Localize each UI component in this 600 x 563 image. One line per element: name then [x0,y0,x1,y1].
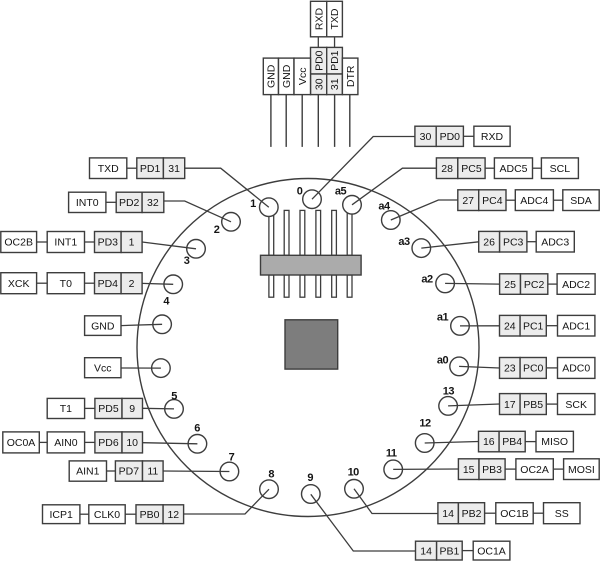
svg-text:6: 6 [194,423,200,435]
svg-text:8: 8 [268,469,274,481]
svg-text:25: 25 [504,279,516,291]
svg-text:a5: a5 [335,186,347,198]
svg-text:11: 11 [386,448,397,460]
svg-text:2: 2 [214,224,220,236]
svg-text:PD0: PD0 [313,50,325,71]
svg-text:XCK: XCK [8,278,30,290]
svg-text:PC5: PC5 [461,163,482,175]
svg-text:14: 14 [442,508,454,520]
svg-text:SS: SS [555,508,569,520]
svg-text:a3: a3 [398,236,410,248]
svg-text:a1: a1 [437,312,449,324]
svg-text:SCL: SCL [550,163,571,175]
svg-text:0: 0 [297,186,303,198]
svg-text:ADC3: ADC3 [541,236,569,248]
svg-text:28: 28 [441,163,453,175]
svg-text:PD4: PD4 [98,278,119,290]
svg-text:GND: GND [281,64,293,88]
svg-text:OC1A: OC1A [477,545,506,557]
svg-text:11: 11 [147,466,158,478]
svg-text:AIN1: AIN1 [76,466,100,478]
svg-text:a2: a2 [421,274,433,286]
svg-text:10: 10 [126,437,138,449]
svg-text:PD1: PD1 [329,50,341,71]
svg-text:DTR: DTR [345,65,357,87]
svg-text:PD1: PD1 [140,163,161,175]
svg-text:TXD: TXD [98,163,119,175]
svg-text:ADC1: ADC1 [562,320,590,332]
svg-text:PD3: PD3 [98,237,119,249]
svg-text:OC0A: OC0A [7,437,36,449]
svg-text:3: 3 [184,255,190,267]
svg-text:12: 12 [419,418,431,430]
svg-text:15: 15 [463,464,475,476]
svg-text:RXD: RXD [313,7,325,30]
svg-text:Vcc: Vcc [297,68,309,86]
svg-text:16: 16 [483,436,495,448]
svg-text:Vcc: Vcc [94,362,112,374]
svg-text:7: 7 [229,452,235,464]
svg-text:MOSI: MOSI [568,464,595,476]
svg-text:OC2A: OC2A [520,464,549,476]
svg-text:AIN0: AIN0 [54,437,78,449]
svg-text:23: 23 [504,363,516,375]
svg-text:PB3: PB3 [482,464,502,476]
svg-text:5: 5 [171,391,177,403]
svg-text:GND: GND [91,320,115,332]
svg-text:a0: a0 [437,355,449,367]
svg-text:ICP1: ICP1 [50,509,74,521]
svg-text:PB0: PB0 [140,509,160,521]
svg-text:PC1: PC1 [523,320,544,332]
svg-text:30: 30 [420,131,432,143]
svg-text:9: 9 [129,403,135,415]
svg-text:1: 1 [250,198,256,210]
svg-text:INT0: INT0 [76,197,99,209]
svg-text:14: 14 [420,545,432,557]
svg-text:TXD: TXD [329,8,341,29]
svg-text:PC4: PC4 [482,195,503,207]
svg-text:OC2B: OC2B [4,237,33,249]
svg-text:26: 26 [483,236,495,248]
svg-text:PC2: PC2 [524,279,545,291]
svg-text:SDA: SDA [570,195,592,207]
svg-text:10: 10 [348,467,360,479]
svg-text:PB5: PB5 [523,399,543,411]
svg-text:INT1: INT1 [54,237,77,249]
svg-text:PB2: PB2 [462,508,482,520]
svg-text:30: 30 [313,78,325,90]
svg-text:ADC5: ADC5 [499,163,527,175]
svg-text:a4: a4 [378,201,391,213]
svg-text:2: 2 [129,278,135,290]
svg-text:17: 17 [504,399,516,411]
svg-text:PB4: PB4 [502,436,522,448]
svg-text:MISO: MISO [541,436,568,448]
svg-text:32: 32 [147,197,159,209]
svg-text:27: 27 [462,195,474,207]
svg-text:1: 1 [129,237,135,249]
svg-text:ADC2: ADC2 [562,279,590,291]
svg-text:PD2: PD2 [119,197,140,209]
svg-text:PC3: PC3 [503,236,524,248]
svg-text:PD5: PD5 [98,403,119,415]
svg-text:T0: T0 [60,278,72,290]
svg-text:PD0: PD0 [440,131,461,143]
svg-text:24: 24 [504,320,516,332]
svg-text:GND: GND [266,64,278,88]
svg-text:RXD: RXD [481,131,504,143]
svg-text:9: 9 [307,472,313,484]
svg-text:ADC0: ADC0 [562,363,590,375]
svg-text:CLK0: CLK0 [94,509,120,521]
svg-text:12: 12 [167,509,179,521]
svg-text:PB1: PB1 [439,545,459,557]
svg-text:PD6: PD6 [98,437,119,449]
svg-text:31: 31 [168,163,180,175]
svg-text:PC0: PC0 [523,363,544,375]
svg-text:13: 13 [443,386,455,398]
svg-text:PD7: PD7 [119,466,140,478]
svg-text:ADC4: ADC4 [520,195,548,207]
svg-text:OC1B: OC1B [500,508,529,520]
svg-text:SCK: SCK [565,399,587,411]
svg-text:T1: T1 [60,403,72,415]
svg-text:31: 31 [329,78,341,90]
